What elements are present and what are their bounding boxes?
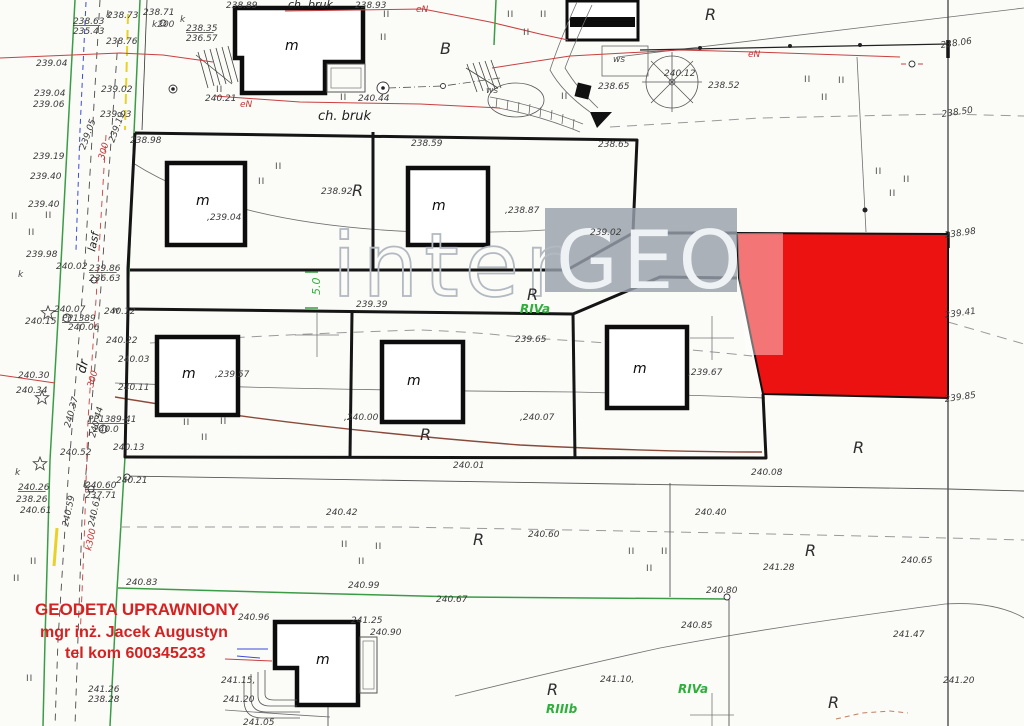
map-label: 238.50 [941,106,974,120]
survey-point-icon [698,46,702,50]
map-label: lasf [85,229,102,253]
vegetation-mark: II [341,540,348,550]
surveyor-stamp: GEODETA UPRAWNIONY mgr inż. Jacek August… [35,600,240,662]
vegetation-mark: II [183,418,190,428]
map-label: 235.43 [73,27,105,37]
map-label: k [180,15,186,25]
map-label: m [182,366,196,382]
map-label: ,239.04 [207,213,242,223]
map-label: k [18,270,24,280]
map-label: 238.89 [226,1,258,11]
vegetation-mark: II [661,547,668,557]
map-label: 238.98 [944,227,977,241]
map-label: 240.60 [528,530,560,540]
marker-triangle [590,112,612,128]
survey-point-icon [788,44,792,48]
contour-bottom-small [225,710,330,717]
map-label: 300 [97,141,111,160]
map-label: k200 [152,20,175,30]
map-label: 238.76 [106,37,138,47]
vegetation-mark: II [804,75,811,85]
water-service-lines [237,649,268,658]
map-label: 240.85 [681,621,713,631]
vegetation-mark: II [275,162,282,172]
map-label: 236.63 [89,274,121,284]
map-label: 238.26 [16,495,48,505]
map-label: RIIIb [546,702,578,716]
map-label: ,239.57 [215,370,250,380]
survey-point-icon [441,84,446,89]
tree-star-icon [33,457,46,470]
terrace-top-inner [331,68,361,88]
short-green [494,0,496,45]
stamp-line1: GEODETA UPRAWNIONY [35,600,240,619]
map-label: 240.65 [901,556,933,566]
map-label: 238.92 [321,187,353,197]
boundary-green-bottom [118,588,728,599]
survey-point-dot [381,86,385,90]
map-label: 240.59 [61,494,77,527]
building-lower-mid [382,342,463,422]
terrace-bottom-inner [363,641,374,689]
map-label: 241.20 [223,695,255,705]
map-label: 240.01 [453,461,485,471]
map-label: eN [748,50,761,60]
map-label: 240.03 [118,355,150,365]
map-label: 238.28 [88,695,120,705]
highlighted-parcel[interactable] [737,233,948,398]
survey-point-icon [863,208,868,213]
vegetation-mark: II [201,433,208,443]
map-label: 238.06 [940,37,973,51]
contour-dashed-239-41 [948,322,1024,344]
map-label: R [473,530,484,549]
line-240-08 [125,476,1024,491]
survey-map: inter GEO IIIIIIIIIIIIIIIIIIIIIIIIIIIIII… [0,0,1024,726]
map-label: 240.12 [104,307,136,317]
map-label: 240.13 [113,443,145,453]
map-label: ,240.07 [520,413,555,423]
contour-dashed-br [836,711,908,719]
map-label: 240.34 [16,386,48,396]
vegetation-mark: II [28,228,35,238]
map-label: m [432,198,446,214]
parcel-divider-lower-2 [573,314,575,458]
stamp-line3: tel kom 600345233 [65,645,206,662]
vegetation-mark: II [375,542,382,552]
map-label: 236.57 [186,34,218,44]
map-label: 240.80 [706,586,738,596]
map-label: 240.96 [238,613,270,623]
map-label: 238.59 [411,139,443,149]
map-label: 5.0 [310,278,323,296]
map-label: 240.52 [60,448,92,458]
stairs-hatch-left [196,46,238,88]
map-label: 239.98 [26,250,58,260]
map-label: 239.40 [30,172,62,182]
tie-line [857,57,866,232]
map-label: 239.04 [36,59,68,69]
vegetation-mark: II [358,557,365,567]
map-label: 238.65 [598,82,630,92]
vegetation-mark: II [258,177,265,187]
map-label: 239.02 [590,228,622,238]
contour-dashed-240-42 [120,527,1024,540]
map-label: 240.44 [358,94,390,104]
map-label: R [853,438,864,457]
map-label: 238.93 [355,1,387,11]
map-label: ch. bruk [288,0,333,11]
map-label: 238.65 [598,140,630,150]
map-label: ,238.87 [505,206,540,216]
map-label: 241.05 [243,718,275,726]
map-label: 240.40 [695,508,727,518]
map-label: ,239.67 [688,368,723,378]
map-label: 240.42 [326,508,358,518]
map-label: 240.37 [63,396,81,429]
ramp-edge-1 [490,97,583,124]
survey-point-icon [909,61,915,67]
vegetation-mark: II [875,167,882,177]
map-label: k300 [84,527,98,551]
map-label: 240.11 [118,383,150,393]
vegetation-mark: II [383,10,390,20]
building-top-small-band [570,17,635,27]
map-svg: inter GEO IIIIIIIIIIIIIIIIIIIIIIIIIIIIII… [0,0,1024,726]
contour-bottom-right [455,604,1024,696]
water-line-blue [76,2,86,250]
stamp-line2: mgr inż. Jacek Augustyn [40,624,228,641]
map-label: 241.20 [943,676,975,686]
map-label: 239.06 [33,100,65,110]
map-label: R [805,541,816,560]
map-label: k [106,10,112,20]
tree-big [642,52,702,112]
ramp-ticks [496,98,574,129]
map-label: ws [613,55,625,65]
map-label: 240.08 [751,468,783,478]
survey-point-icon [858,43,862,47]
vegetation-mark: II [561,92,568,102]
map-label: 240.61 [20,506,52,516]
map-label: 240.15 [25,317,57,327]
vegetation-mark: II [889,189,896,199]
map-label: 241.47 [893,630,925,640]
map-label: 238.98 [130,136,162,146]
map-label: B [440,39,451,58]
vegetation-mark: II [220,417,227,427]
map-label: 238.71 [143,8,175,18]
map-label: m [196,193,210,209]
map-label: 240.83 [126,578,158,588]
watermark: inter GEO [332,208,747,317]
vegetation-mark: II [11,212,18,222]
map-label: 239.05 [78,118,98,151]
map-label: 240.67 [436,595,468,605]
gas-line-yellow-2 [54,528,57,566]
map-label: 240.21 [116,476,148,486]
vegetation-mark: II [903,175,910,185]
map-label: 240.02 [56,262,88,272]
map-label: 241.26 [88,685,120,695]
map-label: 240.90 [370,628,402,638]
map-label: RIVa [520,302,550,316]
map-label: m [633,361,647,377]
vegetation-mark: II [540,10,547,20]
vegetation-mark: II [821,93,828,103]
map-label: 239.19 [33,152,65,162]
map-label: eN [416,5,429,15]
watermark-geo: GEO [556,214,747,307]
survey-point-dot [171,87,175,91]
parcel-divider-lower-1 [350,313,352,457]
ramp-edge-2 [492,107,580,132]
map-label: 239.02 [101,85,133,95]
map-label: ws [486,86,498,96]
map-label: m [407,373,421,389]
map-label: R [352,181,363,200]
map-label: 240.21 [205,94,237,104]
map-label: R [420,425,431,444]
north-fence-line [640,44,948,50]
map-label: 240.22 [106,336,138,346]
map-label: eN [240,100,253,110]
map-label: 241.10, [600,675,634,685]
vegetation-mark: II [13,574,20,584]
map-label: w [112,306,120,316]
fence-line [142,0,147,130]
vegetation-mark: II [380,33,387,43]
map-label: 238.73 [107,11,139,21]
vegetation-mark: II [26,674,33,684]
map-label: 240.99 [348,581,380,591]
vegetation-mark: II [628,547,635,557]
building-lower-right [607,327,687,408]
map-label: 240.30 [18,371,50,381]
map-label: ,240.00 [344,413,379,423]
vegetation-mark: II [838,76,845,86]
building-top-main [235,8,363,93]
terrace-bottom [360,637,377,693]
map-label: RIVa [678,682,708,696]
map-label: 241.28 [763,563,795,573]
vegetation-mark: II [340,93,347,103]
vegetation-mark: II [30,557,37,567]
map-label: 241.25 [351,616,383,626]
map-label: 239.04 [34,89,66,99]
map-label: 240.06 [68,323,100,333]
vegetation-mark: II [646,564,653,574]
vegetation-mark: II [523,28,530,38]
map-label: m [285,38,299,54]
map-label: R [705,5,716,24]
map-label: m [316,652,330,668]
map-label: 239.65 [515,335,547,345]
map-label: k [83,480,89,490]
map-label: 241.15, [221,676,255,686]
vegetation-mark: II [45,211,52,221]
map-label: 239.40 [28,200,60,210]
map-label: 238.52 [708,81,740,91]
map-label: R [547,680,558,699]
map-label: 239.39 [356,300,388,310]
map-label: R [828,693,839,712]
map-label: 240.12 [664,69,696,79]
vegetation-mark: II [507,10,514,20]
map-label: ch. bruk [318,109,371,124]
map-label: k [15,468,21,478]
